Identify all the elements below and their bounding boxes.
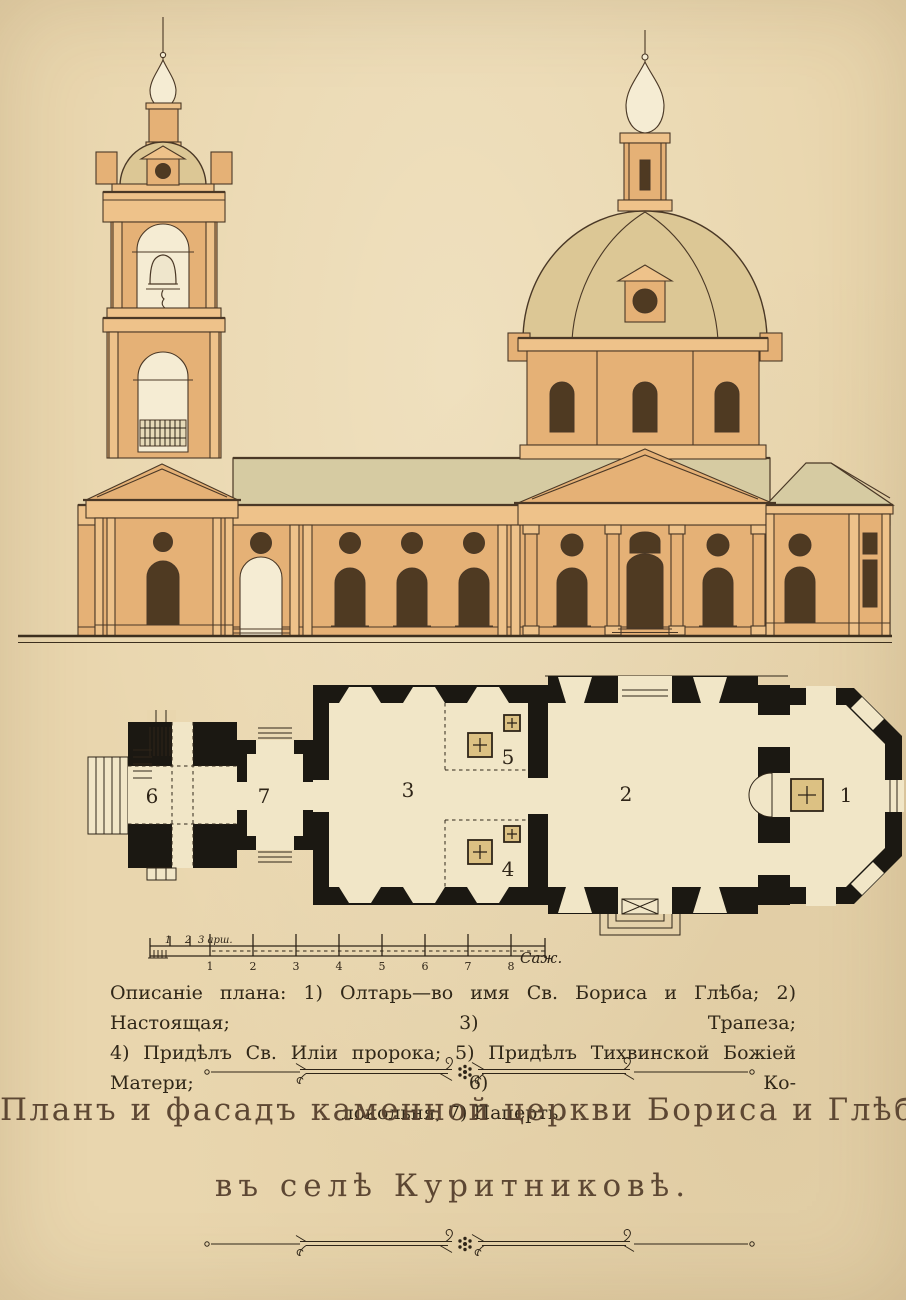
divider-ornament-bottom bbox=[205, 1230, 754, 1256]
arched-window bbox=[331, 568, 369, 626]
west-steps bbox=[88, 757, 128, 834]
small-window bbox=[863, 533, 877, 554]
facade-elevation bbox=[18, 17, 893, 643]
scale-sazhen-7: 7 bbox=[465, 960, 472, 973]
porch-south-steps bbox=[258, 852, 292, 862]
arched-window bbox=[553, 568, 591, 626]
plan-room-label-7: 7 bbox=[258, 784, 271, 808]
plan-room-label-5: 5 bbox=[502, 745, 515, 769]
plan-nave: 2 bbox=[545, 676, 792, 914]
oculus-window bbox=[251, 533, 272, 554]
arched-window bbox=[147, 561, 179, 625]
entrance-door bbox=[240, 557, 282, 636]
lantern-cap bbox=[620, 133, 670, 143]
scale-arshin-3: 3 арш. bbox=[198, 935, 233, 946]
portico-column bbox=[669, 525, 685, 635]
scanned-book-page: 6 7 bbox=[0, 0, 906, 1300]
scale-arshin-1: 1 bbox=[165, 935, 171, 946]
scale-bar: 1 2 3 арш. 1 2 3 4 5 6 7 8 Саж. bbox=[148, 934, 562, 973]
scale-comb bbox=[148, 950, 168, 958]
balustrade bbox=[140, 420, 186, 446]
main-door bbox=[627, 554, 663, 628]
plan-room-label-6: 6 bbox=[146, 784, 159, 808]
scale-sazhen-4: 4 bbox=[336, 960, 343, 973]
plan-refectory: 5 4 3 bbox=[313, 685, 548, 905]
tower-cornice bbox=[103, 192, 225, 222]
plan-room-label-1: 1 bbox=[840, 783, 853, 807]
door-transom bbox=[630, 532, 660, 553]
lantern-window bbox=[640, 160, 650, 190]
oculus-window bbox=[789, 534, 811, 556]
scale-unit-label: Саж. bbox=[520, 949, 562, 967]
dormer-round-window bbox=[633, 289, 657, 313]
portico-column bbox=[523, 525, 539, 635]
apse-roof bbox=[766, 463, 893, 505]
plan-room-label-4: 4 bbox=[502, 857, 515, 881]
spire-ball bbox=[160, 52, 165, 57]
oculus-window bbox=[561, 534, 583, 556]
oculus-window bbox=[340, 533, 361, 554]
portico-column bbox=[605, 525, 621, 635]
portico-entablature bbox=[518, 503, 772, 525]
plan-description-line-1: Описаніе плана: 1) Олтарь—во имя Св. Бор… bbox=[110, 978, 796, 1038]
floor-plan: 6 7 bbox=[88, 676, 904, 935]
plan-altar: 1 bbox=[790, 686, 904, 906]
bell-tower bbox=[83, 17, 241, 636]
scale-sazhen-1: 1 bbox=[207, 960, 214, 973]
plan-bell-tower: 6 bbox=[128, 710, 237, 880]
small-window bbox=[863, 560, 877, 607]
page-title-line-1: Планъ и фасадъ каменной церкви Бориса и … bbox=[0, 1092, 906, 1128]
north-porch-step bbox=[147, 710, 176, 722]
sanctuary-niche bbox=[749, 773, 790, 817]
scale-sazhen-8: 8 bbox=[508, 960, 515, 973]
dormer-round-window bbox=[156, 164, 171, 179]
arched-window bbox=[699, 568, 737, 626]
spire-ball bbox=[642, 54, 648, 60]
divider-rosette bbox=[458, 1237, 471, 1251]
scale-sazhen-2: 2 bbox=[250, 960, 257, 973]
portico-column bbox=[751, 525, 767, 635]
drum-cornice bbox=[518, 338, 768, 351]
central-dome bbox=[508, 30, 782, 459]
page-title-line-2: въ селѣ Куритниковѣ. bbox=[0, 1168, 906, 1204]
onion-finial bbox=[150, 60, 176, 108]
arched-window bbox=[455, 568, 493, 626]
oculus-window bbox=[464, 533, 485, 554]
oculus-window bbox=[402, 533, 423, 554]
ground-line bbox=[18, 636, 892, 643]
scale-sazhen-3: 3 bbox=[293, 960, 300, 973]
lantern-base bbox=[618, 200, 672, 211]
tier-cornice bbox=[103, 318, 225, 332]
arched-window bbox=[393, 568, 431, 626]
arched-window bbox=[785, 567, 815, 622]
south-porch-step bbox=[147, 868, 176, 880]
left-wing-windows bbox=[331, 533, 493, 627]
scale-arshin-2: 2 bbox=[184, 935, 191, 946]
scale-sazhen-6: 6 bbox=[422, 960, 429, 973]
plan-room-label-2: 2 bbox=[620, 782, 633, 806]
porch-north-steps bbox=[258, 728, 292, 738]
oculus-window bbox=[154, 533, 173, 552]
scale-sazhen-5: 5 bbox=[379, 960, 386, 973]
plan-room-label-3: 3 bbox=[402, 778, 415, 802]
onion-finial bbox=[626, 62, 664, 133]
apse-block bbox=[766, 505, 893, 636]
plan-description-line-2: 4) Придѣлъ Св. Иліи пророка; 5) Придѣлъ … bbox=[110, 1038, 796, 1098]
plan-porch: 7 bbox=[237, 728, 313, 862]
oculus-window bbox=[707, 534, 729, 556]
